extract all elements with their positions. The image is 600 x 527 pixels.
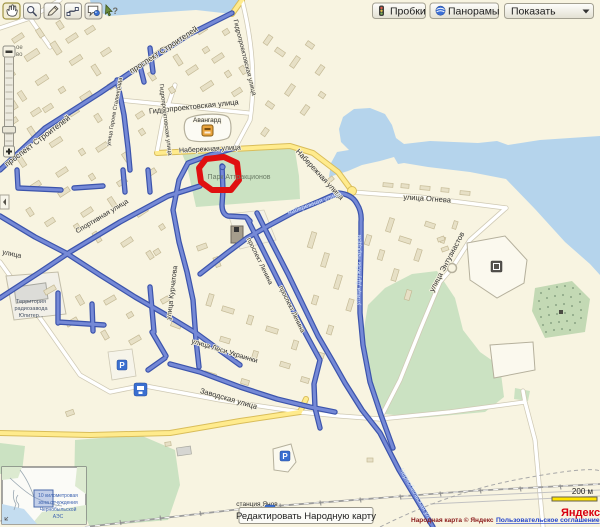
svg-text:P: P	[119, 361, 125, 370]
svg-text:Показать: Показать	[511, 6, 556, 18]
svg-text:зона отчуждения: зона отчуждения	[38, 500, 78, 506]
svg-text:Народная карта © Яндекс: Народная карта © Яндекс	[411, 516, 494, 524]
svg-text:?: ?	[113, 6, 119, 16]
svg-text:P: P	[282, 452, 288, 461]
svg-text:10 километровая: 10 километровая	[38, 493, 78, 499]
svg-text:Пользовательское соглашение: Пользовательское соглашение	[496, 517, 600, 524]
svg-text:Территория: Территория	[16, 299, 46, 305]
svg-text:Авангард: Авангард	[193, 117, 221, 124]
svg-text:Чернобыльской: Чернобыльской	[40, 506, 77, 513]
svg-text:радиозавода: радиозавода	[14, 306, 48, 312]
svg-text:Пробки: Пробки	[390, 6, 426, 18]
svg-text:200 м: 200 м	[572, 487, 593, 496]
svg-text:Панорамы: Панорамы	[448, 6, 499, 18]
svg-text:во: во	[16, 52, 23, 58]
svg-text:Парк Аттракционов: Парк Аттракционов	[208, 174, 271, 181]
svg-text:ое: ое	[16, 45, 23, 51]
svg-text:Юпитер...: Юпитер...	[19, 313, 44, 319]
svg-text:Редактировать Народную карту: Редактировать Народную карту	[236, 511, 376, 522]
svg-text:улица Дружбы народов: улица Дружбы народов	[354, 234, 363, 305]
svg-text:АЭС: АЭС	[53, 514, 64, 520]
